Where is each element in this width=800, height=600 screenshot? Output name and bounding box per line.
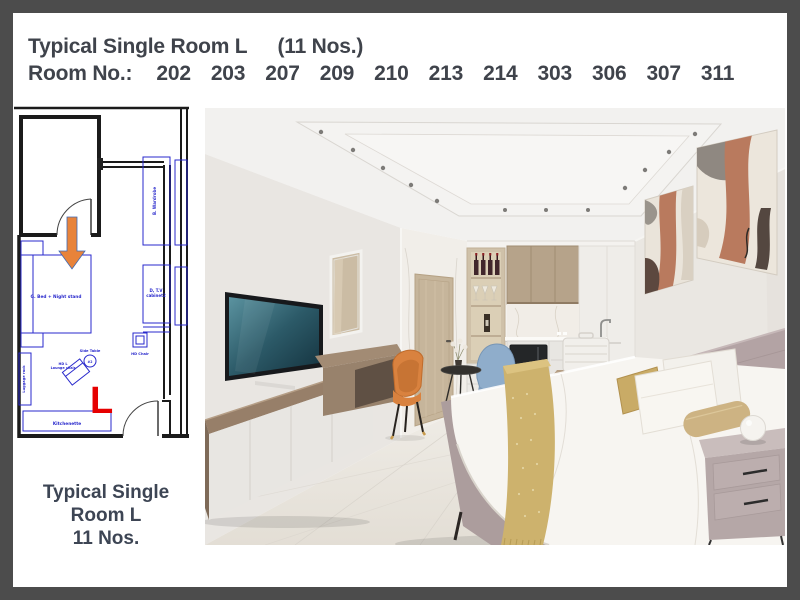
- room-number: 202: [156, 62, 190, 85]
- plan-lounge-label: Lounge chair: [51, 366, 76, 370]
- header-line-1: Typical Single Room L(11 Nos.): [28, 33, 734, 60]
- plan-wardrobe-label: B. Wardrobe: [152, 187, 157, 215]
- slide: Typical Single Room L(11 Nos.) Room No.:…: [13, 13, 787, 587]
- page-title: Typical Single Room L: [28, 35, 247, 58]
- room-number: 214: [483, 62, 517, 85]
- room-render-photo: [205, 108, 785, 545]
- plan-side-table-label: Side Table: [80, 349, 101, 353]
- header: Typical Single Room L(11 Nos.) Room No.:…: [28, 33, 734, 87]
- room-number: 213: [429, 62, 463, 85]
- plan-luggage-label: Luggage rack: [22, 365, 26, 393]
- slide-frame: Typical Single Room L(11 Nos.) Room No.:…: [0, 0, 800, 600]
- room-number: 210: [374, 62, 408, 85]
- room-type-marker: L: [90, 380, 113, 422]
- plan-hd-chair: [133, 333, 147, 347]
- location-arrow-icon: [59, 217, 85, 269]
- plan-nightstand: [21, 241, 43, 255]
- room-number: 209: [320, 62, 354, 85]
- plan-side-table-num: #2: [88, 360, 93, 364]
- plan-tv-label: cabinet2: [146, 293, 166, 298]
- sphere-lamp: [741, 416, 766, 441]
- plan-caption: Typical Single Room L 11 Nos.: [15, 481, 197, 550]
- plan-nightstand: [21, 333, 43, 347]
- room-number: 307: [646, 62, 680, 85]
- caption-line: Typical Single: [15, 481, 197, 504]
- floor-plan: G. Bed + Night stand B. Wardrobe D, T.V …: [13, 105, 189, 457]
- plan-bed: [21, 255, 91, 333]
- room-number: 306: [592, 62, 626, 85]
- plan-kitchenette-label: Kitchenette: [53, 421, 81, 427]
- mirror: [331, 251, 361, 337]
- room-count: (11 Nos.): [277, 35, 363, 58]
- room-number: 203: [211, 62, 245, 85]
- room-number: 303: [538, 62, 572, 85]
- room-number: 311: [701, 62, 734, 85]
- gold-throw: [501, 359, 555, 545]
- caption-line: 11 Nos.: [15, 527, 197, 550]
- header-line-2: Room No.:2022032072092102132143033063073…: [28, 60, 734, 87]
- room-no-label: Room No.:: [28, 62, 132, 85]
- plan-hd-chair-label: HD Chair: [131, 352, 149, 356]
- backsplash: [507, 304, 579, 338]
- plan-bed-label: G. Bed + Night stand: [31, 294, 82, 300]
- room-number: 207: [265, 62, 299, 85]
- door-handle: [446, 340, 451, 342]
- upper-cabinets: [507, 246, 579, 304]
- caption-line: Room L: [15, 504, 197, 527]
